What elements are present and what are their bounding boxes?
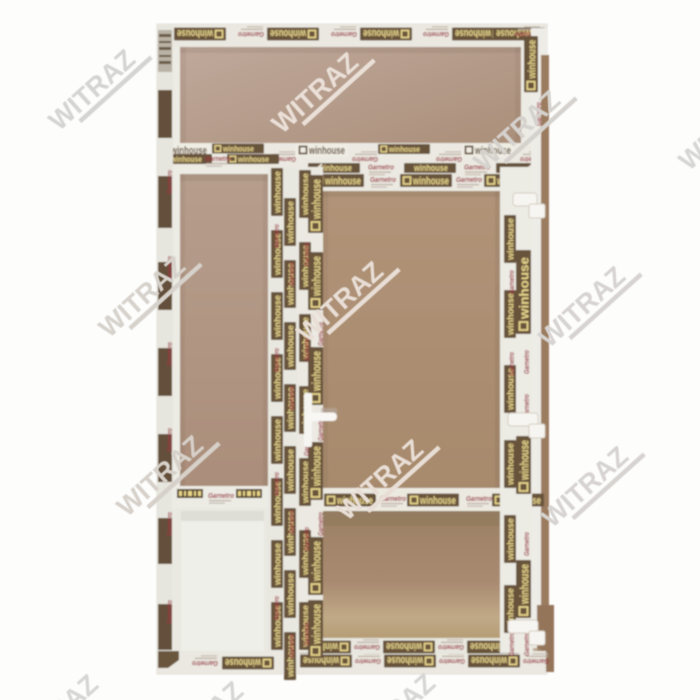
svg-text:winhouse: winhouse — [517, 257, 532, 320]
svg-text:winhouse: winhouse — [413, 163, 448, 173]
